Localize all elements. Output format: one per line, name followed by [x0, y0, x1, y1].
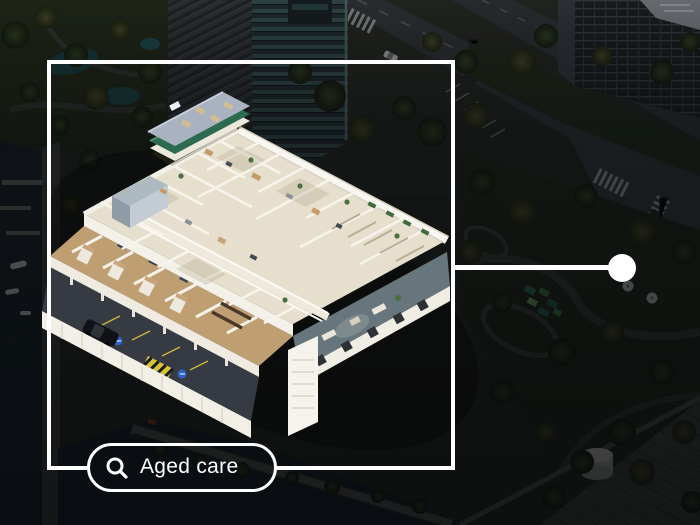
magnifier-icon: [105, 456, 129, 480]
search-pill[interactable]: Aged care: [87, 443, 277, 492]
focus-frame-bottom-right: [275, 466, 455, 470]
aged-care-search-visual: Aged care: [0, 0, 700, 525]
focus-frame-bottom-left: [47, 466, 87, 470]
callout-line: [455, 265, 610, 270]
focus-frame: [47, 60, 455, 470]
search-pill-label: Aged care: [140, 456, 238, 479]
location-dot[interactable]: [608, 254, 636, 282]
